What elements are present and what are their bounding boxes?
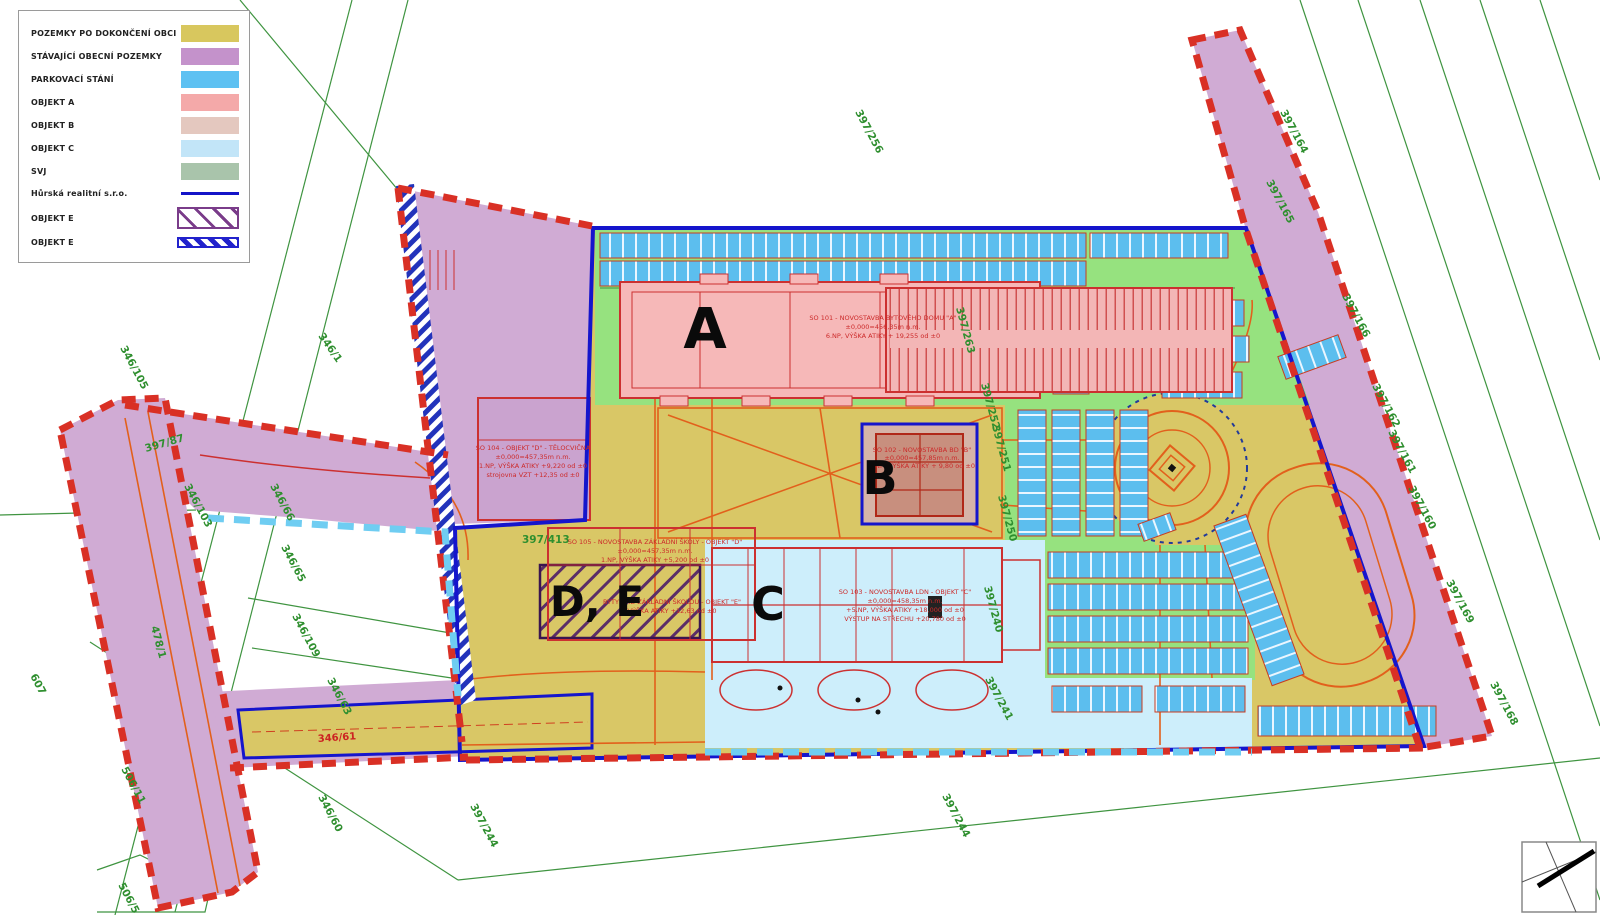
legend-swatch-purple	[181, 48, 239, 65]
svg-text:VÝSTUP NA STŘECHU +20,780 od ±: VÝSTUP NA STŘECHU +20,780 od ±0	[844, 614, 966, 623]
legend-swatch-objekt-c	[181, 140, 239, 157]
legend-label: PARKOVACÍ STÁNÍ	[31, 75, 114, 84]
legend-swatch-svj	[181, 163, 239, 180]
legend-label: OBJEKT A	[31, 98, 75, 107]
svg-text:397/413: 397/413	[522, 534, 570, 546]
svg-text:±0,000=457,35m n.m.: ±0,000=457,35m n.m.	[617, 547, 692, 555]
svg-text:1.NP, VÝŠKA ATIKY +9,220 od ±0: 1.NP, VÝŠKA ATIKY +9,220 od ±0	[479, 461, 587, 470]
legend-label: OBJEKT B	[31, 121, 74, 130]
legend-label: OBJEKT E	[31, 238, 74, 247]
svg-text:+5.NP, VÝŠKA ATIKY +18,000 od: +5.NP, VÝŠKA ATIKY +18,000 od ±0	[846, 605, 964, 614]
legend-swatch-blue	[181, 71, 239, 88]
legend-swatch-yellow	[181, 25, 239, 42]
svg-text:346/65: 346/65	[278, 543, 308, 584]
svg-text:346/105: 346/105	[117, 344, 150, 392]
legend-swatch-objekt-b	[181, 117, 239, 134]
svg-text:397/244: 397/244	[939, 792, 972, 840]
legend-label: OBJEKT C	[31, 144, 74, 153]
svg-text:6.NP, VÝŠKA ATIKY + 19,255 od: 6.NP, VÝŠKA ATIKY + 19,255 od ±0	[826, 331, 940, 340]
svg-text:±0,000=458,35m n.m.: ±0,000=458,35m n.m.	[867, 597, 942, 605]
legend-label: OBJEKT E	[31, 214, 74, 223]
svg-text:SO 104 - OBJEKT "D" - TĚLOCVIČ: SO 104 - OBJEKT "D" - TĚLOCVIČNA	[476, 443, 591, 452]
svg-text:397/256: 397/256	[852, 108, 885, 156]
svg-text:SO 101 - NOVOSTAVBA BYTOVÉHO D: SO 101 - NOVOSTAVBA BYTOVÉHO DOMU "A"	[809, 313, 956, 322]
legend-swatch-hatch-blue	[177, 237, 239, 248]
svg-text:397/168: 397/168	[1487, 680, 1520, 728]
legend-item: OBJEKT E	[31, 235, 239, 250]
svg-text:B: B	[862, 451, 897, 505]
site-plan-canvas: 397/256 397/164 397/165 397/166 397/162 …	[0, 0, 1600, 915]
legend-item: STÁVAJÍCÍ OBECNÍ POZEMKY	[31, 48, 239, 65]
legend-label: Hůrská realitní s.r.o.	[31, 189, 127, 198]
legend-label: STÁVAJÍCÍ OBECNÍ POZEMKY	[31, 52, 162, 61]
svg-text:346/109: 346/109	[289, 612, 322, 660]
svg-text:1.NP, VÝŠKA ATIKY +5,200 od ±0: 1.NP, VÝŠKA ATIKY +5,200 od ±0	[601, 555, 709, 564]
svg-text:±0,000=456,35m n.m.: ±0,000=456,35m n.m.	[845, 323, 920, 331]
legend-item: POZEMKY PO DOKONČENÍ OBCI	[31, 25, 239, 42]
svg-text:±0,000=457,35m n.m.: ±0,000=457,35m n.m.	[495, 453, 570, 461]
legend-item: OBJEKT B	[31, 117, 239, 134]
svg-text:397/244: 397/244	[467, 802, 500, 850]
svg-text:346/1: 346/1	[316, 331, 345, 365]
legend-item: OBJEKT E	[31, 207, 239, 229]
legend: POZEMKY PO DOKONČENÍ OBCI STÁVAJÍCÍ OBEC…	[18, 10, 250, 263]
legend-label: POZEMKY PO DOKONČENÍ OBCI	[31, 29, 176, 38]
svg-text:607: 607	[27, 672, 48, 697]
legend-item: OBJEKT C	[31, 140, 239, 157]
svg-text:SO 103 - NOVOSTAVBA LDN - OBJE: SO 103 - NOVOSTAVBA LDN - OBJEKT "C"	[839, 588, 971, 596]
legend-item: OBJEKT A	[31, 94, 239, 111]
svg-text:D, E: D, E	[550, 577, 644, 626]
legend-swatch-objekt-a	[181, 94, 239, 111]
svg-text:SO 105 - NOVOSTAVBA ZÁKLADNÍ Š: SO 105 - NOVOSTAVBA ZÁKLADNÍ ŠKOLY - OBJ…	[568, 537, 743, 546]
legend-item: SVJ	[31, 163, 239, 180]
legend-item: Hůrská realitní s.r.o.	[31, 186, 239, 201]
legend-swatch-hatch-purple	[177, 207, 239, 229]
compass-box	[1522, 842, 1596, 912]
svg-text:A: A	[683, 297, 727, 362]
legend-swatch-boundary-line	[181, 192, 239, 195]
building-garage	[886, 288, 1232, 392]
legend-label: SVJ	[31, 167, 47, 176]
legend-item: PARKOVACÍ STÁNÍ	[31, 71, 239, 88]
svg-text:C: C	[751, 577, 785, 631]
svg-text:346/60: 346/60	[315, 793, 345, 834]
svg-text:strojovna VZT +12,35 od ±0: strojovna VZT +12,35 od ±0	[486, 471, 579, 479]
